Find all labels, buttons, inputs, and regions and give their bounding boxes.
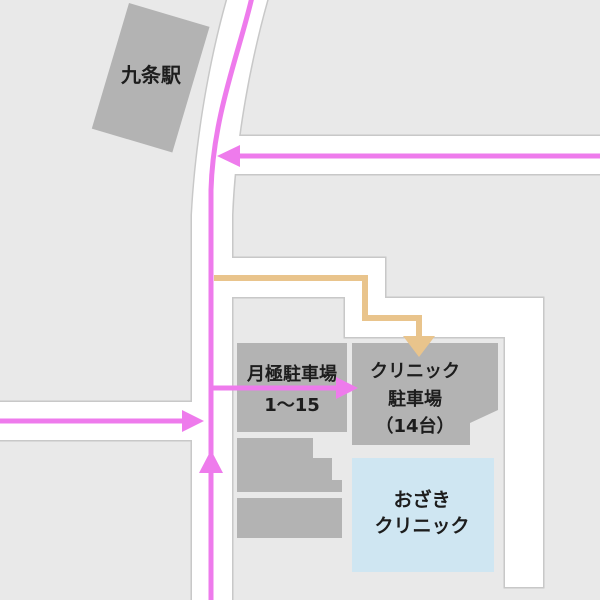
monthly-parking-label: 月極駐車場 bbox=[246, 363, 337, 385]
monthly-parking-numbers-label: 1〜15 bbox=[264, 395, 320, 416]
clinic-label-line2: クリニック bbox=[374, 515, 469, 537]
small-building bbox=[237, 498, 342, 538]
clinic-parking-label-line2: 駐車場 bbox=[388, 388, 442, 410]
station-label: 九条駅 bbox=[120, 63, 181, 87]
clinic-parking-label-line3: （14台） bbox=[375, 415, 454, 437]
map-canvas: 九条駅 月極駐車場 1〜15 クリニック 駐車場 （14台） おざき クリニック bbox=[0, 0, 600, 600]
access-map: 九条駅 月極駐車場 1〜15 クリニック 駐車場 （14台） おざき クリニック bbox=[0, 0, 600, 600]
clinic-label-line1: おざき bbox=[393, 488, 450, 511]
clinic-parking-label-line1: クリニック bbox=[370, 361, 460, 382]
